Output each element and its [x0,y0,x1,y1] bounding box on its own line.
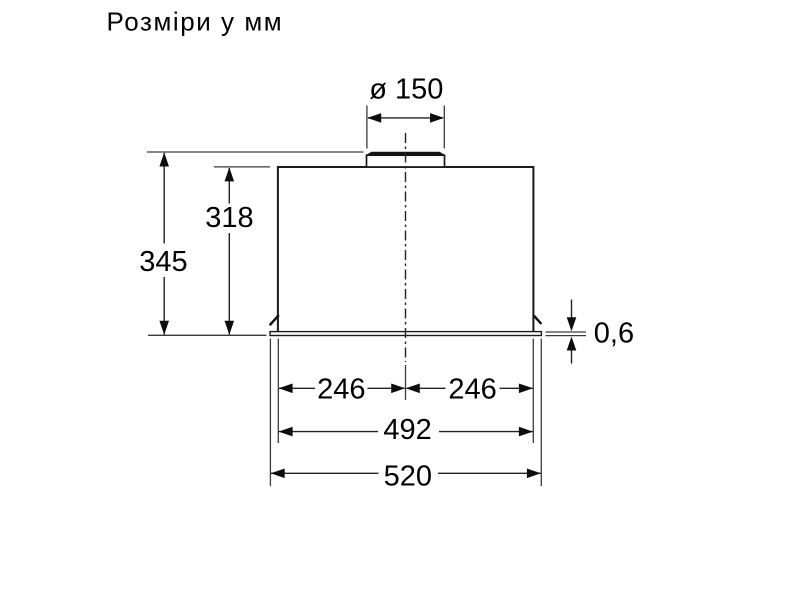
svg-text:0,6: 0,6 [594,318,634,350]
svg-text:246: 246 [317,374,365,406]
svg-text:Розміри у мм: Розміри у мм [107,6,284,36]
svg-text:345: 345 [139,246,187,278]
svg-text:ø 150: ø 150 [369,74,443,106]
svg-text:318: 318 [205,202,253,234]
svg-text:520: 520 [384,461,432,493]
svg-text:246: 246 [448,374,496,406]
svg-text:492: 492 [383,414,431,446]
